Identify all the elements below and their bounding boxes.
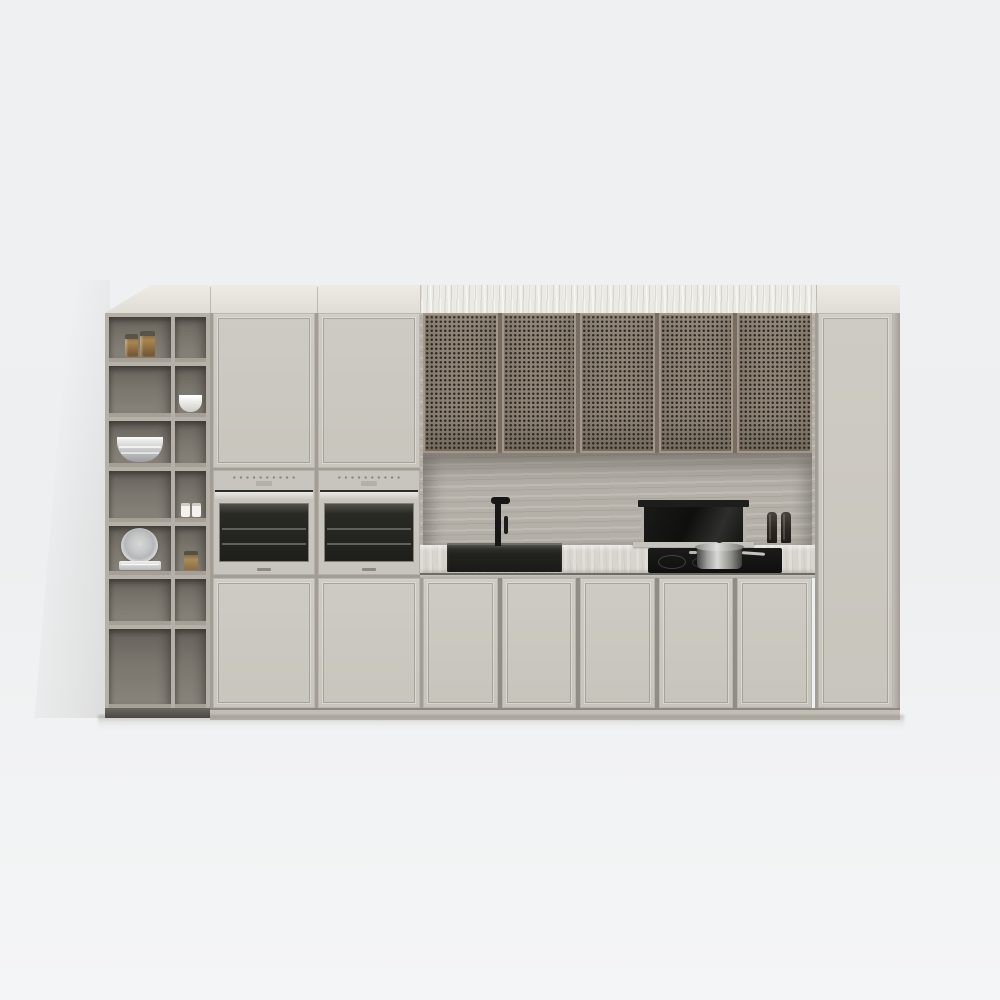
oven-display (256, 481, 272, 486)
pot-lid-knob (716, 538, 723, 543)
plate-display (118, 526, 162, 570)
base-cabinet-door (423, 578, 498, 708)
oven-button-row (336, 476, 402, 479)
shelf-cubby (175, 317, 206, 362)
oven-rack (222, 543, 306, 545)
open-shelving (105, 313, 210, 708)
base-cabinets-under-counter (423, 578, 812, 708)
base-cabinet-door (580, 578, 655, 708)
oven-control-panel (213, 470, 315, 490)
right-tall-cabinet-door (818, 313, 893, 708)
mesh-cabinet-door (423, 313, 498, 453)
downdraft-hood (641, 507, 746, 543)
travertine-backsplash (423, 453, 812, 550)
white-bowl (179, 395, 202, 412)
upper-mesh-cabinets (423, 313, 812, 453)
shelf-cubby (109, 421, 171, 467)
base-cabinet-door (737, 578, 812, 708)
oven-brand-label (362, 568, 376, 571)
oven-rack (327, 528, 411, 530)
tall-cabinet-door (213, 313, 315, 468)
stacked-bowls (117, 437, 163, 462)
small-white-jar (181, 503, 190, 517)
oven-rack (222, 528, 306, 530)
pot-handle (689, 551, 697, 554)
small-white-jar (192, 503, 201, 517)
built-in-oven (213, 470, 315, 575)
oven-rack (327, 543, 411, 545)
mesh-cabinet-door (737, 313, 812, 453)
pepper-mill (767, 512, 777, 543)
base-cabinet-door (659, 578, 734, 708)
mesh-cabinet-door (659, 313, 734, 453)
amber-jar (125, 334, 138, 357)
pepper-mill (781, 512, 791, 543)
faucet-lever (504, 516, 508, 534)
shelf-cubby (109, 629, 171, 708)
shelf-cubby (109, 526, 171, 575)
oven-handle (320, 490, 418, 499)
mesh-cabinet-door (502, 313, 577, 453)
wall-shadow (18, 280, 110, 718)
oven-handle (215, 490, 313, 499)
floor-shadow (98, 715, 904, 729)
shelf-cubby (175, 421, 206, 467)
shelf-cubby (109, 366, 171, 417)
crown-band (105, 285, 900, 313)
pot-lid (695, 543, 744, 551)
base-cabinet-door (502, 578, 577, 708)
plate-stack (119, 561, 161, 570)
oven-door-glass (324, 503, 414, 562)
oven-button-row (231, 476, 297, 479)
base-cabinet-door (318, 578, 420, 708)
oven-door-glass (219, 503, 309, 562)
oven-display (361, 481, 377, 486)
oven-brand-label (257, 568, 271, 571)
crown-marble-band (420, 285, 817, 313)
downdraft-hood-cap (638, 500, 749, 507)
shelf-cubby (175, 366, 206, 417)
amber-jar-tall (140, 331, 155, 357)
crown-seam (317, 287, 318, 313)
niche-side-wall (812, 313, 815, 575)
amber-spice-jar (184, 551, 198, 570)
built-in-oven (318, 470, 420, 575)
tall-cabinet-door (318, 313, 420, 468)
shelf-cubby (109, 579, 171, 625)
oven-control-panel (318, 470, 420, 490)
cabinet-side-panel (893, 313, 900, 708)
faucet-riser (495, 501, 501, 546)
kitchen-unit (105, 285, 900, 718)
shelf-cubby (109, 317, 171, 362)
shelf-cubby (175, 629, 206, 708)
upright-plate (121, 528, 158, 563)
shelf-cubby (175, 526, 206, 575)
crown-seam (210, 287, 211, 313)
base-cabinet-door (213, 578, 315, 708)
shelf-cubby (175, 471, 206, 522)
kitchen-sink (447, 543, 562, 572)
shelf-cubby (109, 471, 171, 522)
shelf-cubby (175, 579, 206, 625)
mesh-cabinet-door (580, 313, 655, 453)
